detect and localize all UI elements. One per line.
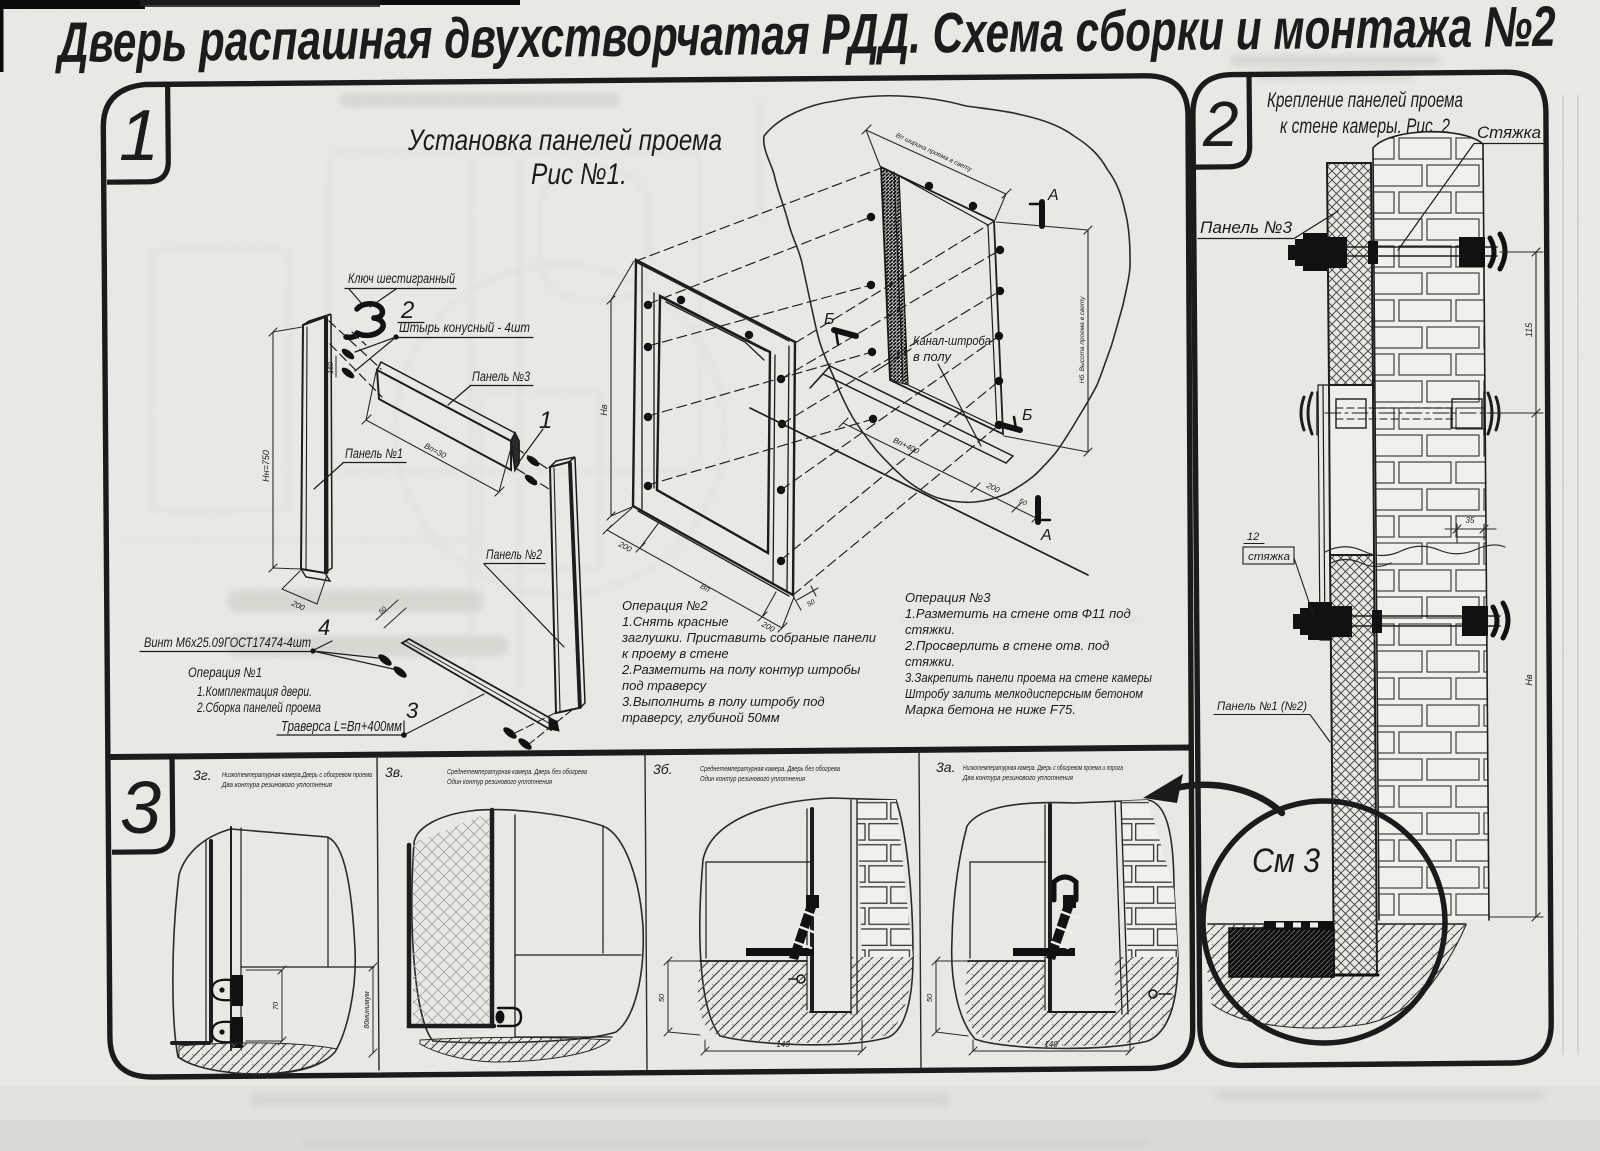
svg-text:Один контур резинового уплотне: Один контур резинового уплотнения [447,777,552,786]
svg-text:заглушки. Приставить собраные: заглушки. Приставить собраные панели [621,630,876,645]
svg-text:50: 50 [925,993,934,1002]
svg-text:Панель №3: Панель №3 [472,369,530,384]
svg-text:Установка панелей проема: Установка панелей проема [407,124,722,157]
svg-text:См 3: См 3 [1252,842,1320,880]
svg-text:стяжки.: стяжки. [905,622,955,637]
svg-text:1.Разметить на стене отв Ф11 п: 1.Разметить на стене отв Ф11 под [905,606,1131,621]
svg-text:к проему в стене: к проему в стене [622,646,729,661]
svg-text:Траверса L=Вп+400мм: Траверса L=Вп+400мм [281,719,402,735]
svg-text:1.Снять красные: 1.Снять красные [622,614,729,629]
svg-text:115: 115 [1524,322,1534,337]
svg-text:1: 1 [539,407,552,434]
svg-text:А: А [1047,187,1059,204]
svg-text:50: 50 [657,993,666,1002]
svg-text:А: А [1040,527,1052,544]
svg-text:Нн=750: Нн=750 [261,450,271,482]
svg-text:Один контур резинового уплотне: Один контур резинового уплотнения [700,774,805,783]
svg-text:Б: Б [1022,407,1032,424]
svg-text:Операция №2: Операция №2 [622,598,708,613]
svg-text:Среднетемпературная камера. Дв: Среднетемпературная камера. Дверь без об… [700,764,840,773]
svg-text:Штырь конусный - 4шт: Штырь конусный - 4шт [399,320,530,335]
svg-text:Марка бетона не ниже F75.: Марка бетона не ниже F75. [905,702,1076,717]
svg-text:Крепление панелей проема: Крепление панелей проема [1267,89,1463,112]
svg-text:Операция №3: Операция №3 [905,590,991,605]
svg-text:3.Выполнить в полу штробу под: 3.Выполнить в полу штробу под [622,694,825,709]
svg-text:Операция №1: Операция №1 [188,664,262,680]
svg-text:2.Просверлить в стене отв. по: 2.Просверлить в стене отв. под [904,638,1109,653]
svg-text:140: 140 [776,1040,790,1049]
svg-text:140: 140 [1044,1040,1058,1049]
svg-text:Панель №1 (№2): Панель №1 (№2) [1217,699,1307,713]
svg-text:80минимум: 80минимум [364,991,371,1028]
svg-text:Нв: Нв [1524,674,1534,685]
svg-text:стяжки.: стяжки. [905,654,955,669]
svg-text:1.Комплектация двери.: 1.Комплектация двери. [197,683,312,699]
svg-text:Нб. Высота проема в свету: Нб. Высота проема в свету [1078,296,1086,383]
svg-text:35: 35 [1466,516,1475,525]
svg-text:Панель №3: Панель №3 [1200,218,1293,237]
svg-text:стяжка: стяжка [1248,551,1290,563]
svg-text:1: 1 [119,96,159,176]
svg-text:2: 2 [1202,88,1239,160]
svg-text:Стяжка: Стяжка [1477,123,1541,142]
svg-text:12: 12 [1247,531,1259,543]
svg-text:Нв: Нв [599,404,609,415]
svg-text:3: 3 [406,698,419,723]
svg-text:3б.: 3б. [653,761,673,777]
svg-text:Два контура резинового уплотне: Два контура резинового уплотнения [962,773,1073,782]
svg-text:Штробу залить мелкодисперсным: Штробу залить мелкодисперсным бетоном [905,686,1143,701]
svg-text:Низкотемпературная камера. Две: Низкотемпературная камера. Дверь с обогр… [963,763,1123,772]
svg-text:70: 70 [271,1001,280,1010]
svg-text:3.Закрепить панели проема на с: 3.Закрепить панели проема на стене камер… [905,670,1152,685]
svg-text:Среднетемпературная камера. Дв: Среднетемпературная камера. Дверь без об… [447,767,587,776]
svg-text:Низкотемпературная камера.Двер: Низкотемпературная камера.Дверь с обогре… [222,770,372,779]
svg-text:траверсу, глубиной 50мм: траверсу, глубиной 50мм [622,710,780,725]
svg-text:Панель №2: Панель №2 [486,547,542,562]
svg-text:Рис №1.: Рис №1. [531,158,627,191]
svg-text:Ключ шестигранный: Ключ шестигранный [348,271,455,286]
svg-text:Б: Б [824,311,834,328]
svg-text:Канал-штроба: Канал-штроба [913,333,991,348]
svg-text:Винт М6х25.09ГОСТ17474-4шт: Винт М6х25.09ГОСТ17474-4шт [144,634,311,650]
svg-text:3в.: 3в. [385,764,404,780]
svg-text:3: 3 [120,766,161,849]
svg-text:4: 4 [318,615,330,640]
svg-text:Два контура резинового уплотне: Два контура резинового уплотнения [221,780,332,789]
svg-text:2.Сборка панелей проема: 2.Сборка панелей проема [196,699,321,715]
svg-text:в полу: в полу [913,349,952,364]
svg-text:3г.: 3г. [193,767,212,783]
svg-text:2.Разметить на полу контур штр: 2.Разметить на полу контур штробы [621,662,861,677]
svg-text:под траверсу: под траверсу [622,678,708,693]
svg-text:160: 160 [328,362,335,374]
svg-text:3а.: 3а. [936,759,955,775]
svg-text:Панель №1: Панель №1 [345,446,403,461]
